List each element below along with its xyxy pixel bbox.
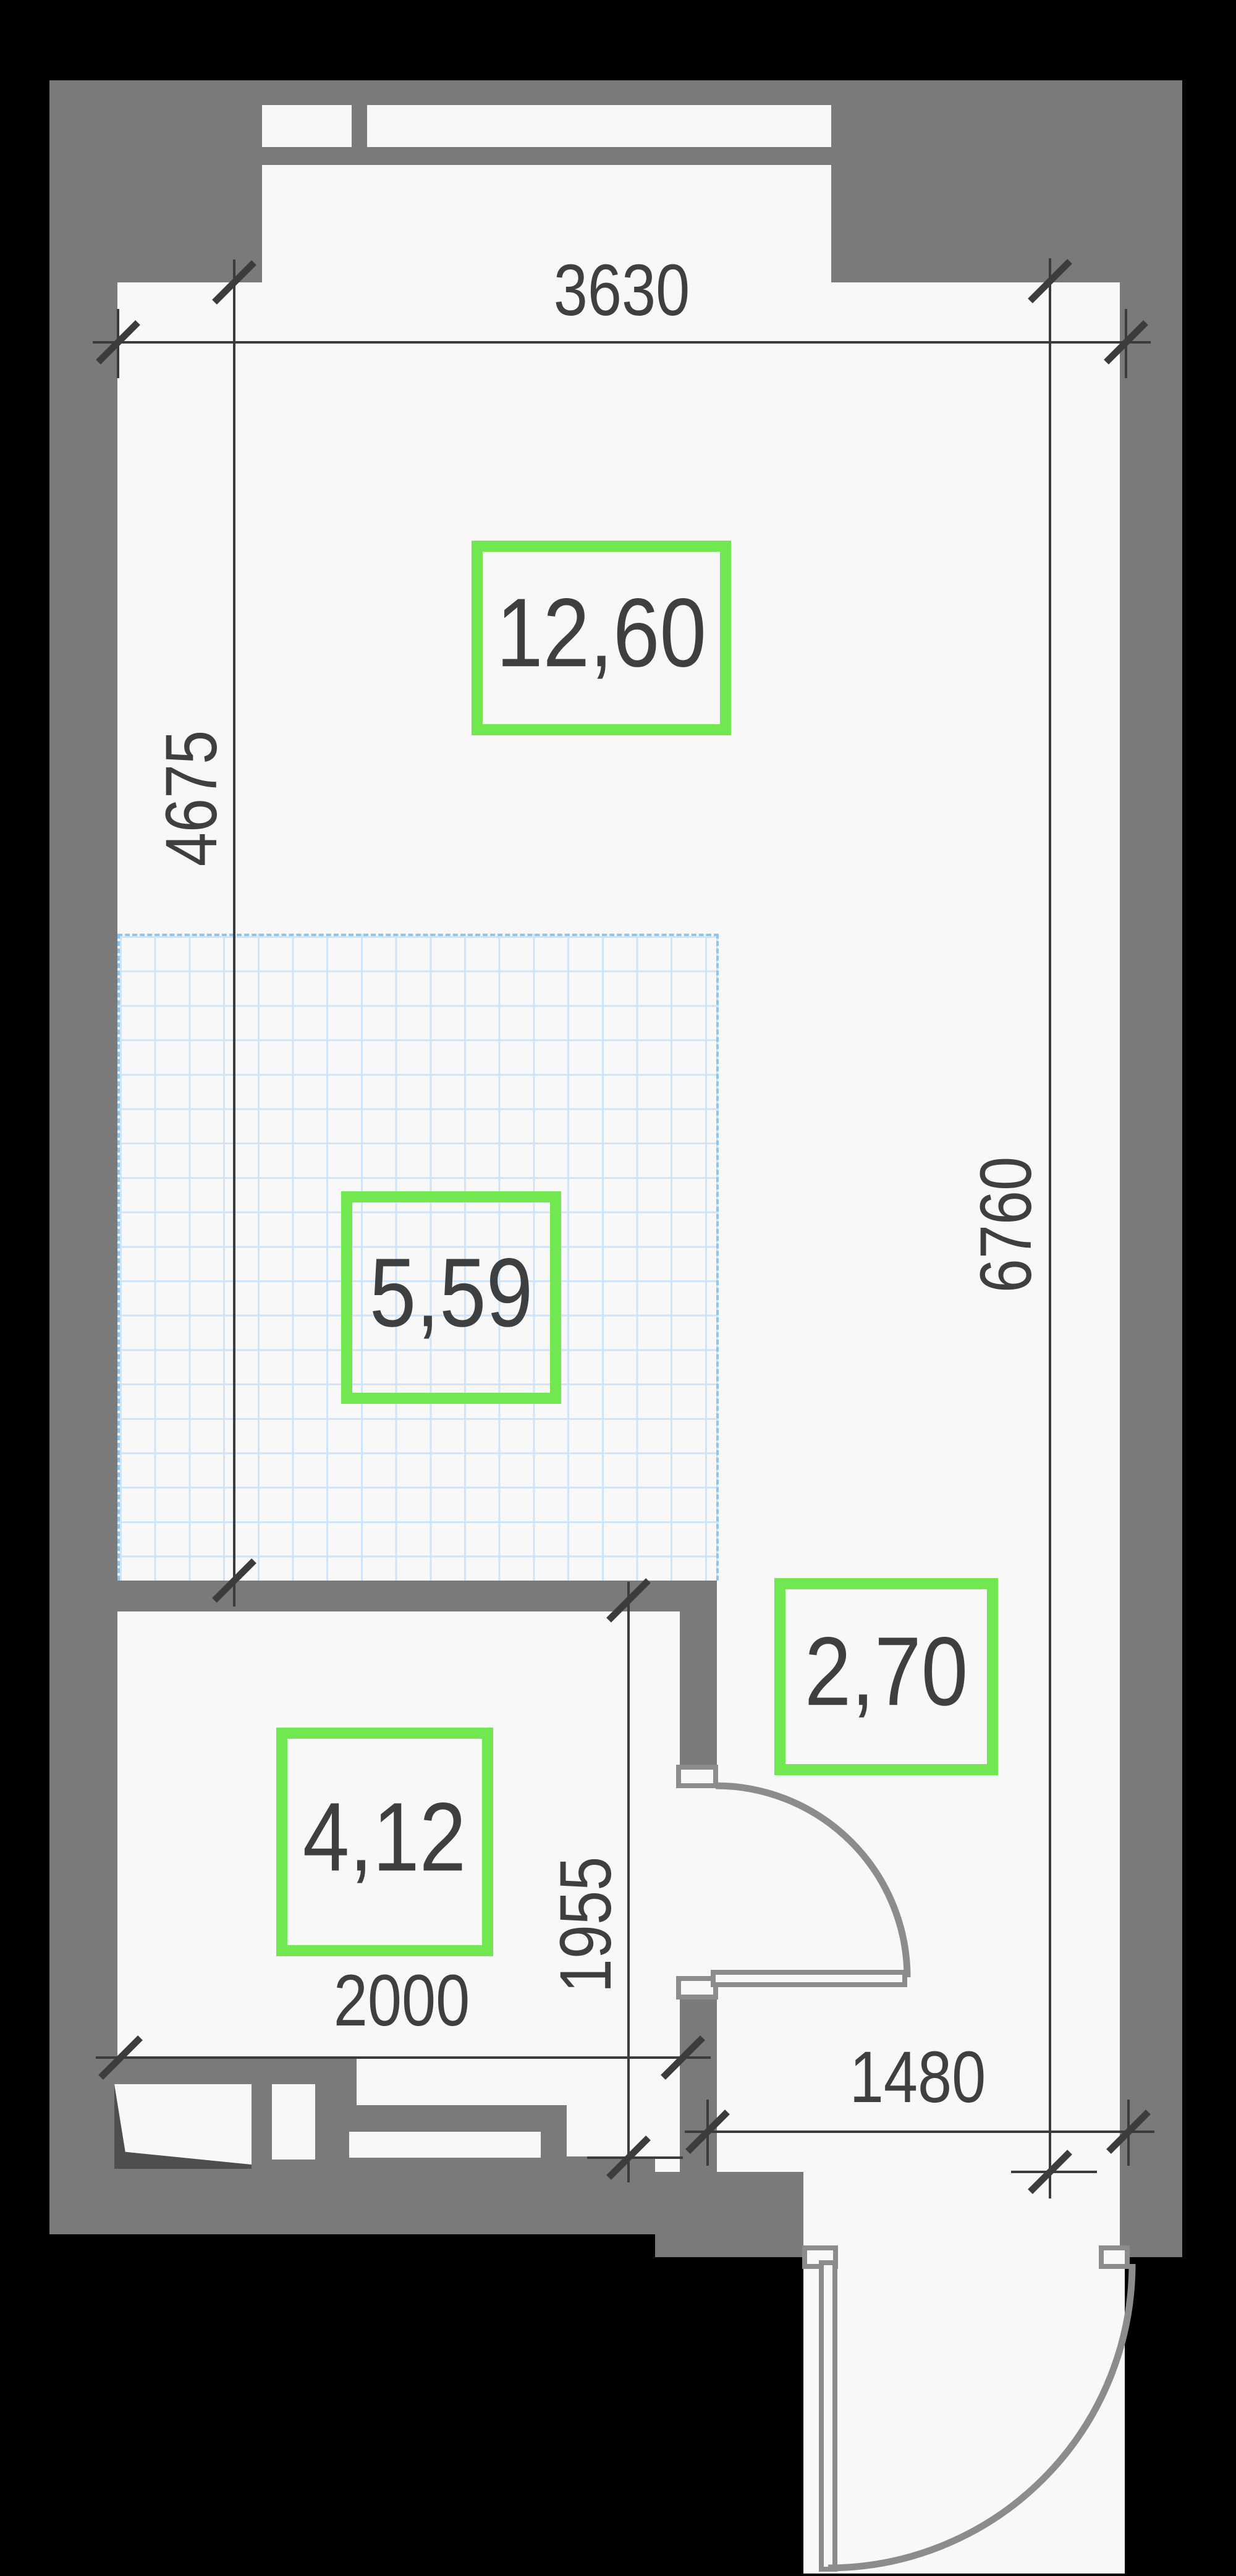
dim-label-4675: 4675 [150,730,234,867]
plan-linework [0,0,1236,2576]
dim-label-6760: 6760 [964,1157,1048,1293]
bath-door-arc [716,1786,907,1977]
area-label-bathroom: 4,12 [303,1781,466,1893]
door-symbols [679,1767,1132,2569]
area-label-living: 12,60 [496,577,706,689]
area-label-hallway: 2,70 [805,1616,968,1728]
entry-door-leaf [821,2263,835,2569]
entry-door-jamb-right [1101,2248,1127,2266]
entry-door-arc [828,2264,1132,2568]
bath-door-leaf [713,1972,905,1985]
bath-door-jamb-bottom [679,1978,716,1997]
dim-label-3630: 3630 [554,248,690,332]
dim-label-2000: 2000 [334,1959,470,2043]
dim-label-1955: 1955 [544,1857,628,1993]
dim-label-1480: 1480 [850,2035,986,2119]
area-label-loft: 5,59 [370,1237,533,1349]
bath-door-jamb-top [679,1767,716,1786]
floor-plan-canvas: 12,60 5,59 2,70 4,12 3630 4675 6760 1955… [0,0,1236,2576]
